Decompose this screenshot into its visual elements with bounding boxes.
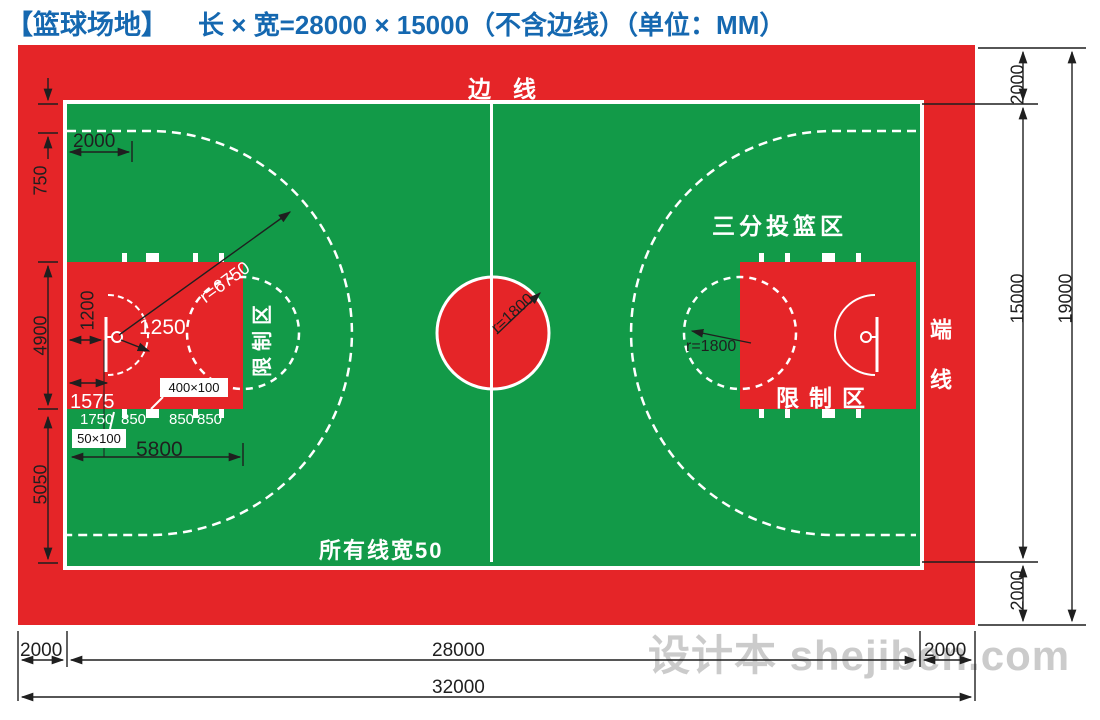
dim-right-2000-bottom-label: 2000 bbox=[1008, 561, 1029, 621]
dim-1200-label: 1200 bbox=[78, 281, 99, 341]
dim-750-label: 750 bbox=[31, 161, 52, 201]
dim-4900-label: 4900 bbox=[31, 306, 52, 366]
restricted-area-label-left: 限制区 bbox=[246, 293, 270, 383]
watermark: 设计本 shejiben.com bbox=[648, 622, 1070, 683]
lane-spacing-850a: 850 bbox=[121, 411, 146, 428]
dim-19000-label: 19000 bbox=[1056, 264, 1077, 334]
dim-right-r1800-label: r=1800 bbox=[686, 338, 736, 356]
block-50x100-tag: 50×100 bbox=[72, 429, 126, 448]
dim-5800-label: 5800 bbox=[136, 438, 183, 462]
dim-2000-topleft-label: 2000 bbox=[73, 131, 115, 153]
dim-1250-label: 1250 bbox=[139, 316, 186, 340]
dim-right-2000-top-label: 2000 bbox=[1008, 55, 1029, 115]
dim-28000-label: 28000 bbox=[432, 640, 485, 662]
dim-bottom-2000-right-label: 2000 bbox=[924, 640, 966, 662]
lane-spacing-1750: 1750 bbox=[80, 411, 113, 428]
three-point-area-label: 三分投篮区 bbox=[712, 207, 847, 241]
block-400x100-tag: 400×100 bbox=[160, 378, 228, 397]
endline-label: 端线 bbox=[923, 318, 955, 418]
page-title: 【篮球场地】长 × 宽=28000 × 15000（不含边线）（单位：MM） bbox=[6, 3, 785, 42]
title-bracket: 【篮球场地】 bbox=[6, 10, 168, 40]
lane-spacing-850b: 850 bbox=[169, 411, 194, 428]
dim-5050-label: 5050 bbox=[31, 455, 52, 515]
basketball-court-diagram: 【篮球场地】长 × 宽=28000 × 15000（不含边线）（单位：MM） 设… bbox=[0, 0, 1100, 720]
restricted-area-label-right: 限制区 bbox=[776, 379, 875, 413]
dim-15000-label: 15000 bbox=[1008, 264, 1029, 334]
lane-spacing-850c: 850 bbox=[197, 411, 222, 428]
line-width-note: 所有线宽50 bbox=[319, 533, 443, 565]
title-spec: 长 × 宽=28000 × 15000（不含边线）（单位：MM） bbox=[198, 10, 785, 40]
dim-32000-label: 32000 bbox=[432, 677, 485, 699]
dim-bottom-2000-left-label: 2000 bbox=[20, 640, 62, 662]
sideline-label: 边线 bbox=[468, 70, 558, 104]
